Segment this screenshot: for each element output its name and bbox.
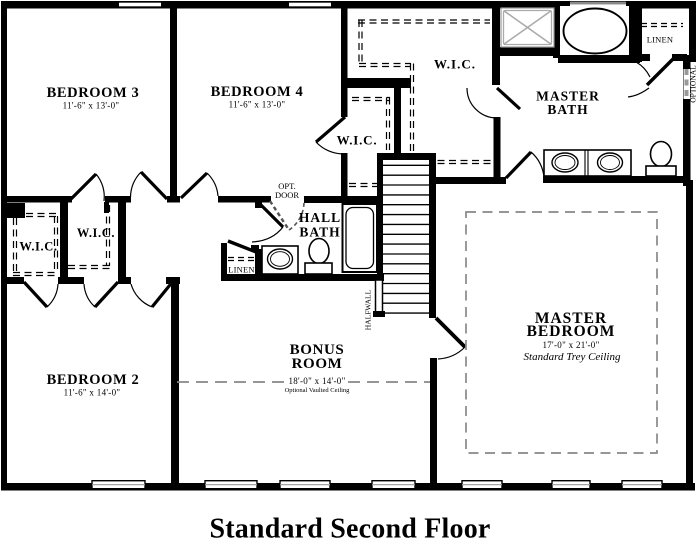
svg-text:18'-0" x 14'-0": 18'-0" x 14'-0" [288,376,345,386]
svg-text:BEDROOM: BEDROOM [527,323,616,340]
svg-text:BEDROOM 2: BEDROOM 2 [47,372,140,388]
svg-text:W.I.C.: W.I.C. [77,226,115,240]
svg-text:W.I.C.: W.I.C. [337,133,378,148]
svg-text:HALL: HALL [299,210,341,225]
svg-text:LINEN: LINEN [228,265,255,275]
svg-text:Optional Vaulted Ceiling: Optional Vaulted Ceiling [285,387,351,394]
svg-text:BEDROOM 3: BEDROOM 3 [47,85,140,101]
svg-text:11'-6" x 13'-0": 11'-6" x 13'-0" [229,100,286,110]
svg-text:Standard Second Floor: Standard Second Floor [209,514,490,542]
svg-text:W.I.C.: W.I.C. [434,57,476,72]
svg-text:W.I.C.: W.I.C. [19,240,57,254]
svg-text:BEDROOM 4: BEDROOM 4 [211,84,304,100]
svg-text:Standard Trey Ceiling: Standard Trey Ceiling [524,351,621,363]
svg-text:DOOR: DOOR [275,190,299,200]
svg-text:HALFWALL: HALFWALL [364,289,373,330]
svg-text:11'-6" x 13'-0": 11'-6" x 13'-0" [63,101,120,111]
svg-text:17'-0" x 21'-0": 17'-0" x 21'-0" [542,340,599,350]
svg-text:BATH: BATH [299,225,340,240]
svg-text:LINEN: LINEN [647,35,674,45]
svg-text:OPTIONAL: OPTIONAL [689,65,698,103]
svg-text:BATH: BATH [547,102,588,117]
svg-text:11'-6" x 14'-0": 11'-6" x 14'-0" [64,388,121,398]
svg-text:ROOM: ROOM [292,356,343,372]
